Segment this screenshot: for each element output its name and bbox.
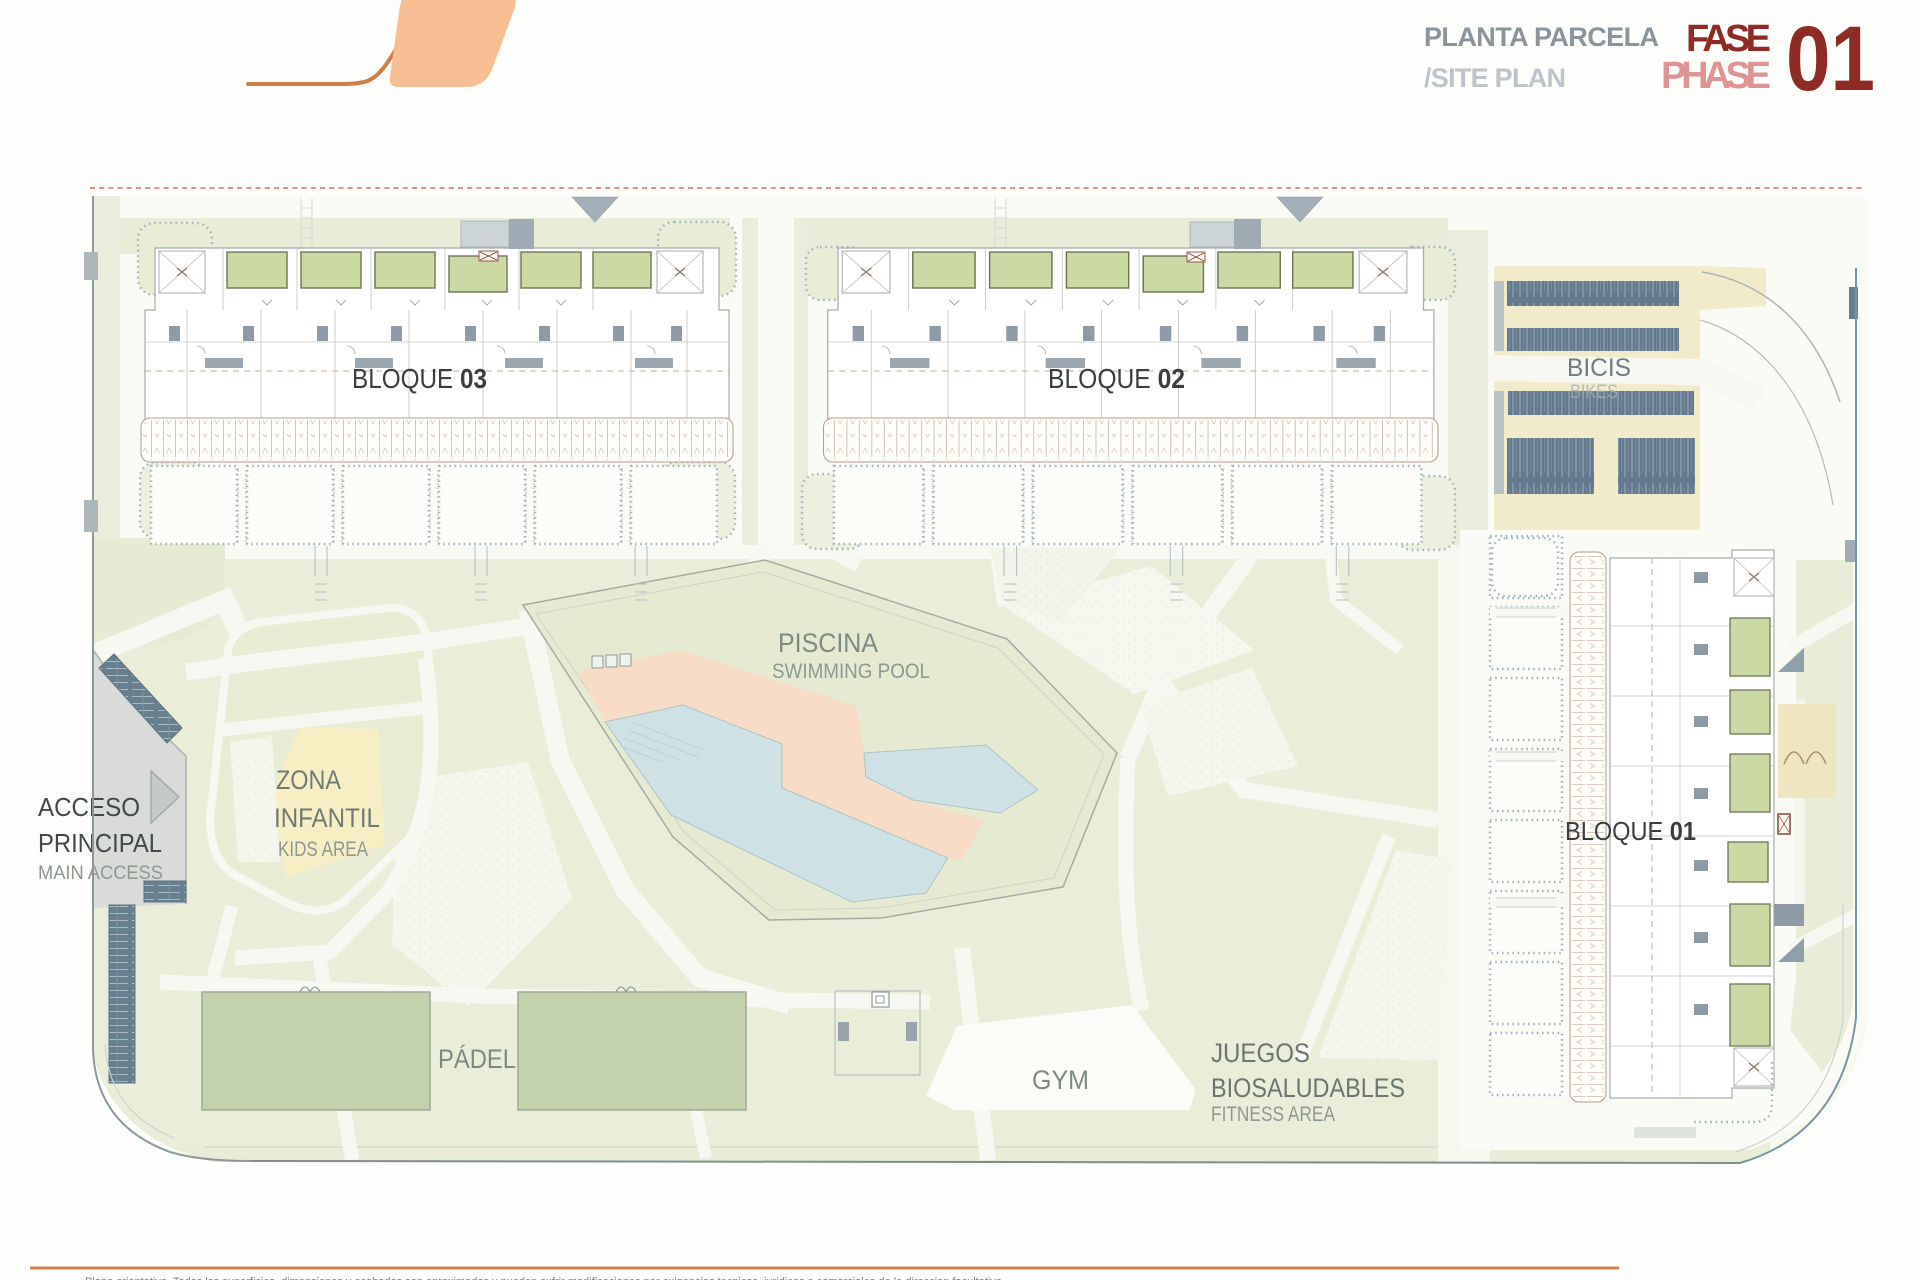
svg-text:FASE: FASE (1686, 18, 1771, 60)
svg-text:ZONA: ZONA (276, 765, 341, 795)
svg-text:01: 01 (1786, 8, 1875, 110)
svg-text:MAIN ACCESS: MAIN ACCESS (38, 863, 163, 884)
svg-text:PISCINA: PISCINA (778, 628, 878, 658)
svg-text:BLOQUE 01: BLOQUE 01 (1565, 816, 1696, 846)
svg-text:ACCESO: ACCESO (38, 792, 140, 822)
svg-text:PRINCIPAL: PRINCIPAL (38, 828, 162, 858)
svg-text:INFANTIL: INFANTIL (274, 803, 380, 833)
svg-text:PÁDEL: PÁDEL (438, 1044, 516, 1074)
svg-text:PHASE: PHASE (1661, 55, 1771, 97)
svg-text:PLANTA PARCELA: PLANTA PARCELA (1424, 22, 1659, 52)
svg-text:BLOQUE 03: BLOQUE 03 (352, 363, 487, 394)
svg-text:SWIMMING POOL: SWIMMING POOL (772, 660, 930, 683)
svg-text:KIDS AREA: KIDS AREA (278, 838, 368, 861)
svg-text:BICIS: BICIS (1567, 354, 1631, 382)
svg-text:BLOQUE 02: BLOQUE 02 (1048, 363, 1185, 394)
svg-text:BIKES: BIKES (1570, 382, 1618, 403)
svg-text:BIOSALUDABLES: BIOSALUDABLES (1211, 1073, 1405, 1103)
svg-text:Plano orientativo. Todas las s: Plano orientativo. Todas las superficies… (85, 1276, 1005, 1280)
svg-text:GYM: GYM (1032, 1065, 1089, 1095)
svg-text:FITNESS AREA: FITNESS AREA (1211, 1103, 1335, 1126)
svg-text:JUEGOS: JUEGOS (1211, 1038, 1310, 1068)
svg-text:/SITE PLAN: /SITE PLAN (1424, 63, 1566, 93)
